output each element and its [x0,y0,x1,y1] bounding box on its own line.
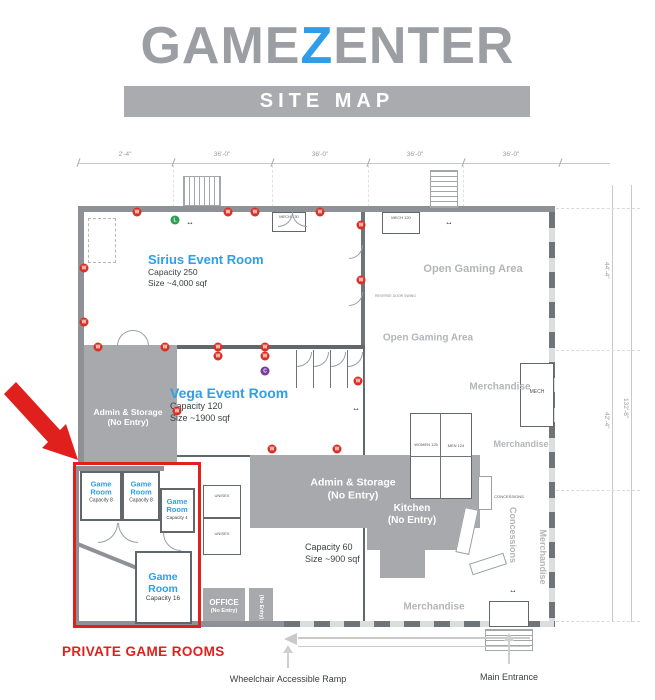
logo-z-icon: Z [300,17,333,75]
ramp-pointer-arrow-icon [283,645,293,653]
main-entrance-vestibule [489,601,529,627]
office-line2: (No Entry) [209,608,238,615]
vega-size: Size ~1900 sqf [170,413,288,425]
door-frame [364,350,365,388]
w-marker: W [94,343,103,352]
w-marker: W [161,343,170,352]
vega-capacity: Capacity 120 [170,401,288,413]
mech-top-right-label: MECH 120 [384,216,418,221]
sirius-capacity: Capacity 250 [148,267,264,278]
w-marker: W [80,264,89,273]
ref-line [173,165,174,207]
ref-line [368,165,369,207]
w-marker: W [133,208,142,217]
ref-line [556,208,640,209]
sirius-size: Size ~4,000 sqf [148,278,264,289]
men-restroom-label: MEN 124 [443,444,469,449]
w-marker: W [224,208,233,217]
sirius-title: Sirius Event Room [148,252,264,267]
main-entrance-label: Main Entrance [480,672,538,682]
door-swing-arrow-marker: ↔ [186,218,194,227]
admin-center-label: Admin & Storage (No Entry) [310,476,395,501]
dim-label: 36'-0" [407,151,424,158]
sirius-label-block: Sirius Event Room Capacity 250 Size ~4,0… [148,252,264,289]
kitchen-area-stats: Capacity 60 Size ~900 sqf [305,542,360,565]
door-swing-arrow-marker: ↔ [352,404,360,413]
office-line1: OFFICE [209,598,238,608]
unisex-restroom-upper [203,485,241,518]
concessions-counter-label: CONCESSIONS [492,495,526,500]
right-dimension-line-inner [612,185,613,622]
dim-label: 36'-0" [214,151,231,158]
w-marker: W [354,377,363,386]
concessions-counter-fixture [478,476,492,510]
dim-label-right-lower: 42'-4" [603,412,610,429]
top-stairs-left [183,176,221,206]
concessions-vertical-label: Concessions [508,507,518,563]
w-marker: W [261,343,270,352]
dim-label: 36'-0" [312,151,329,158]
unisex-lower-label: UNISEX [207,532,237,537]
kitchen-line1: Kitchen [388,503,436,515]
ref-line [556,621,640,622]
w-marker: W [214,352,223,361]
w-marker: W [80,318,89,327]
restroom-divider [410,456,472,457]
ramp-arrow-icon [284,633,297,645]
merchandise-mid-label: Merchandise [493,439,548,449]
c-marker: C [261,367,270,376]
w-marker: W [333,445,342,454]
w-marker: W [357,221,366,230]
women-restroom-label: WOMEN 125 [413,443,439,448]
w-marker: W [261,352,270,361]
merchandise-lower-label: Merchandise [403,602,464,613]
kitchen-area-capacity: Capacity 60 [305,542,360,554]
admin-center-line1: Admin & Storage [310,476,395,489]
ramp-pointer-line [287,652,289,668]
right-dimension-line-outer [631,185,632,622]
l-marker: L [171,216,180,225]
admin-left-label: Admin & Storage (No Entry) [94,407,163,427]
w-marker: W [316,208,325,217]
entrance-pointer-line [508,640,510,664]
merchandise-vertical-label: Merchandise [538,529,548,584]
w-marker: W [173,407,182,416]
open-gaming-lower-label: Open Gaming Area [383,333,473,344]
door-swing-arrow-marker: ↔ [509,586,517,595]
ramp-line [298,646,530,647]
gamezenter-logo: GAMEZENTER [0,16,655,76]
reverse-door-note: REVERSE DOOR SWING [375,294,421,298]
dashed-area [88,218,116,263]
kitchen-zone [367,526,467,550]
w-marker: W [357,276,366,285]
logo-part1: GAME [140,17,300,75]
w-marker: W [214,343,223,352]
dim-label-right-total: 132'-8" [622,398,629,418]
site-map-banner: SITE MAP [124,86,530,117]
open-gaming-upper-label: Open Gaming Area [423,263,522,275]
unisex-upper-label: UNISEX [207,494,237,499]
entrance-pointer-arrow-icon [504,633,514,641]
w-marker: W [268,445,277,454]
door-swing-arrow-marker: ↔ [445,218,453,227]
ref-line [556,350,640,351]
admin-left-line2: (No Entry) [94,417,163,427]
dim-label-right-upper: 44'-4" [603,262,610,279]
ref-line [463,165,464,207]
wheelchair-ramp-label: Wheelchair Accessible Ramp [230,674,347,684]
merchandise-upper-label: Merchandise [469,382,530,393]
private-game-rooms-caption: PRIVATE GAME ROOMS [62,644,225,659]
private-game-rooms-highlight [73,462,201,628]
top-dimension-line [78,163,610,164]
kitchen-area-size: Size ~900 sqf [305,554,360,566]
kitchen-label: Kitchen (No Entry) [388,503,436,527]
admin-left-line1: Admin & Storage [94,407,163,417]
w-marker: W [251,208,260,217]
logo-part2: ENTER [333,17,514,75]
site-map-page: GAMEZENTER SITE MAP 2'-4" 36'-0" 36'-0" … [0,0,655,700]
admin-center-line2: (No Entry) [310,489,395,502]
kitchen-zone-stub [380,550,425,578]
office-label: OFFICE (No Entry) [209,598,238,614]
ref-line [556,490,640,491]
kitchen-line2: (No Entry) [388,515,436,527]
ref-line [272,165,273,207]
mech-room-right [520,363,554,427]
vega-label-block: Vega Event Room Capacity 120 Size ~1900 … [170,385,288,424]
mech-corridor-label: (No Entry) [258,595,264,619]
dim-label: 2'-4" [119,151,132,158]
admin-storage-left-zone [80,345,177,462]
dim-label: 36'-0" [503,151,520,158]
red-arrow-icon [2,380,87,472]
top-stairs-right [430,170,458,208]
vega-title: Vega Event Room [170,385,288,401]
ramp-line [298,637,530,639]
